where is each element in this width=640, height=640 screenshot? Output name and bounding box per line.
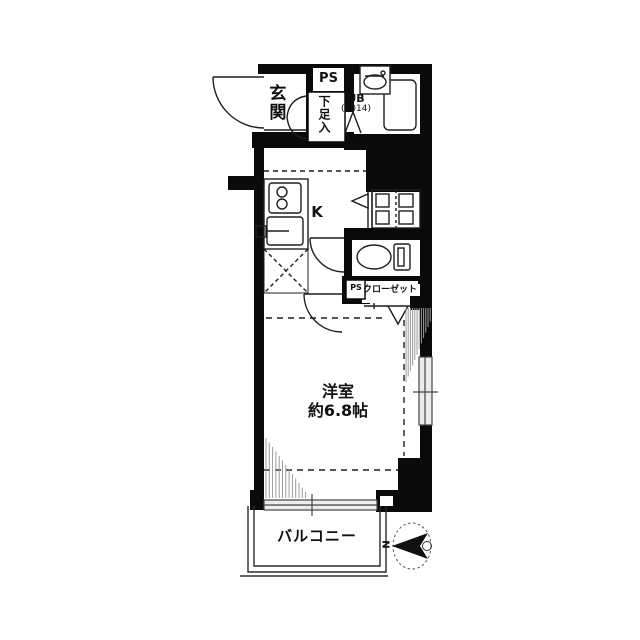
bath-sink-icon bbox=[360, 66, 390, 94]
refrigerator-space-icon bbox=[264, 249, 308, 293]
compass bbox=[392, 523, 432, 569]
stove-icon bbox=[269, 183, 301, 213]
wall-notch bbox=[380, 496, 393, 506]
closet-corner-wall bbox=[410, 296, 432, 310]
kitchen-label: K bbox=[304, 204, 330, 220]
pipe-space-top-label: PS bbox=[312, 72, 345, 86]
front-door bbox=[213, 77, 264, 128]
room-door bbox=[304, 294, 342, 332]
unit-bath-size-label: (1014) bbox=[334, 105, 378, 115]
washer-space-icon bbox=[352, 190, 420, 228]
compass-north-label: N bbox=[383, 534, 394, 554]
room-size-label: 約6.8帖 bbox=[288, 402, 388, 419]
entrance-label: 玄関 bbox=[266, 84, 284, 122]
balcony-sliding-window bbox=[264, 494, 377, 516]
toilet-door bbox=[310, 238, 344, 272]
side-window bbox=[413, 357, 438, 425]
closet-door bbox=[364, 303, 412, 324]
floor-plan: 玄関 PS 下足入 UB (1014) K PS クローゼット 洋室 約6.8帖… bbox=[0, 0, 640, 640]
closet-label: クローゼット bbox=[361, 286, 419, 296]
shoe-storage-label: 下足入 bbox=[317, 95, 330, 134]
room-name-label: 洋室 bbox=[288, 383, 388, 400]
hatch-bottom-left bbox=[266, 438, 306, 498]
balcony-label: バルコニー bbox=[258, 528, 376, 544]
